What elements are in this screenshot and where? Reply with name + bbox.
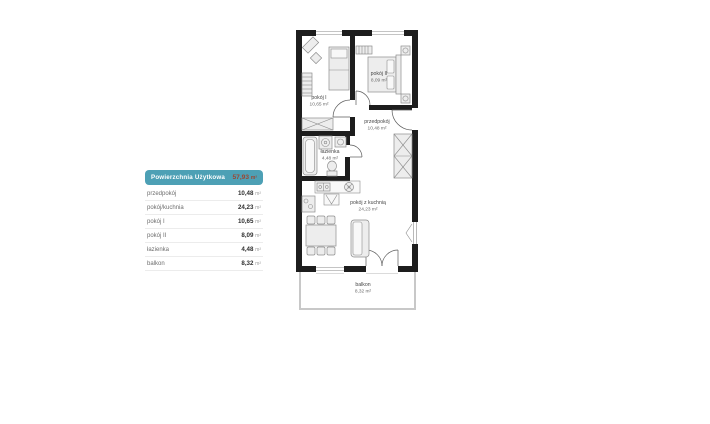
legend-row-pokoj-kuchnia: pokój/kuchnia 24,23 m²	[145, 201, 263, 215]
label-przedpokoj: przedpokój 10,48 m²	[364, 119, 389, 132]
row-label: łazienka	[147, 247, 169, 253]
dining-set	[306, 216, 336, 255]
svg-text:10,48 m²: 10,48 m²	[368, 126, 387, 132]
row-value: 4,48 m²	[241, 246, 261, 253]
svg-text:4,48 m²: 4,48 m²	[322, 156, 339, 162]
row-label: pokój II	[147, 233, 166, 239]
desk-chair	[310, 52, 321, 63]
nightstand-bottom	[401, 94, 410, 103]
row-value: 24,23 m²	[238, 204, 261, 211]
svg-text:10,65 m²: 10,65 m²	[310, 102, 329, 108]
row-value: 10,48 m²	[238, 190, 261, 197]
legend-row-pokoj-ii: pokój II 8,09 m²	[145, 229, 263, 243]
floor-plan: pokój I 10,65 m² pokój II 8,09 m² przedp…	[290, 25, 425, 315]
row-value-unit: m²	[255, 205, 261, 211]
area-legend: Powierzchnia Użytkowa 57,93 m² przedpokó…	[145, 170, 263, 271]
legend-row-pokoj-i: pokój I 10,65 m²	[145, 215, 263, 229]
bathroom-sink	[335, 137, 346, 147]
window-pokoj-i	[316, 30, 342, 36]
row-value-number: 10,65	[238, 218, 253, 225]
bed-single	[329, 47, 349, 90]
wardrobe-pokoj-i	[302, 118, 333, 130]
svg-text:8,09 m²: 8,09 m²	[371, 78, 388, 84]
door-lazienka	[350, 145, 362, 157]
row-value-number: 10,48	[238, 190, 253, 197]
row-value-unit: m²	[255, 233, 261, 239]
svg-text:przedpokój: przedpokój	[364, 119, 389, 125]
legend-row-lazienka: łazienka 4,48 m²	[145, 243, 263, 257]
stove	[345, 183, 354, 192]
row-value: 8,32 m²	[241, 260, 261, 267]
row-value-unit: m²	[255, 261, 261, 267]
row-value-unit: m²	[255, 191, 261, 197]
label-balkon: balkon 8,32 m²	[355, 282, 372, 295]
page: Powierzchnia Użytkowa 57,93 m² przedpokó…	[0, 0, 710, 424]
nightstand-top	[401, 46, 410, 55]
door-balcony	[366, 250, 398, 266]
svg-text:pokój z kuchnią: pokój z kuchnią	[350, 200, 386, 206]
legend-rows: przedpokój 10,48 m² pokój/kuchnia 24,23 …	[145, 187, 263, 271]
wardrobe-left	[302, 73, 312, 96]
desk	[302, 37, 318, 53]
door-pokoj-i	[333, 100, 350, 117]
radiator	[356, 46, 372, 54]
row-value: 8,09 m²	[241, 232, 261, 239]
row-value-number: 8,09	[241, 232, 253, 239]
legend-total-value: 57,93	[233, 174, 250, 181]
window-pokoj-ii	[372, 30, 404, 36]
entrance-opening	[412, 108, 418, 130]
balcony-door-opening	[366, 266, 398, 272]
legend-row-przedpokoj: przedpokój 10,48 m²	[145, 187, 263, 201]
row-label: przedpokój	[147, 191, 176, 197]
label-pokoj-i: pokój I 10,65 m²	[310, 95, 329, 108]
svg-text:8,32 m²: 8,32 m²	[355, 289, 372, 295]
legend-header: Powierzchnia Użytkowa 57,93 m²	[145, 170, 263, 185]
window-right-wall	[406, 222, 418, 244]
svg-text:24,23 m²: 24,23 m²	[359, 207, 378, 213]
bathtub	[303, 137, 317, 175]
legend-title: Powierzchnia Użytkowa	[151, 174, 225, 181]
label-pokoj-z-kuchnia: pokój z kuchnią 24,23 m²	[350, 200, 386, 213]
wardrobe-hall	[394, 134, 412, 178]
door-entrance	[392, 110, 412, 130]
row-value-number: 4,48	[241, 246, 253, 253]
window-living-room	[316, 266, 344, 272]
row-label: pokój I	[147, 219, 165, 225]
row-value: 10,65 m²	[238, 218, 261, 225]
label-lazienka: łazienka 4,48 m²	[320, 149, 339, 162]
row-value-number: 8,32	[241, 260, 253, 267]
svg-text:łazienka: łazienka	[320, 149, 339, 155]
washing-machine	[319, 136, 332, 149]
sofa	[351, 220, 369, 257]
row-label: pokój/kuchnia	[147, 205, 184, 211]
svg-text:pokój I: pokój I	[311, 95, 326, 101]
kitchen-sink	[317, 183, 330, 191]
svg-text:pokój II: pokój II	[371, 71, 388, 77]
casement-marker	[406, 224, 412, 242]
toilet	[327, 161, 337, 176]
row-value-number: 24,23	[238, 204, 253, 211]
fridge	[302, 196, 315, 212]
legend-row-balkon: balkon 8,32 m²	[145, 257, 263, 271]
row-value-unit: m²	[255, 219, 261, 225]
row-value-unit: m²	[255, 247, 261, 253]
door-pokoj-ii	[356, 91, 370, 105]
dishwasher	[324, 194, 339, 205]
legend-total: 57,93 m²	[233, 174, 257, 181]
legend-total-unit: m²	[251, 175, 257, 181]
svg-text:balkon: balkon	[355, 282, 370, 288]
row-label: balkon	[147, 261, 165, 267]
